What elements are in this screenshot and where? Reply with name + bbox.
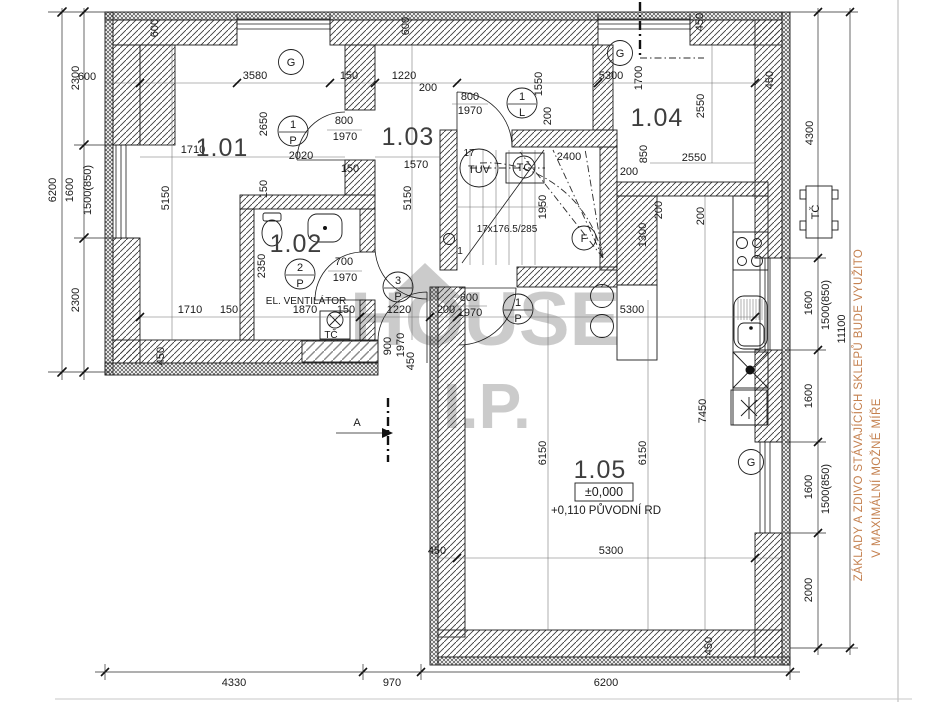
heat-pump-label: TČ (809, 205, 822, 220)
dim-label: 11100 (836, 315, 848, 344)
wall-segment (140, 45, 175, 145)
svg-text:P: P (289, 135, 296, 147)
section-label: A (353, 417, 361, 429)
dim-label: 450 (155, 347, 167, 365)
dim-label: 450 (405, 352, 417, 370)
door-size: 800 (335, 115, 353, 127)
wall-segment (360, 209, 375, 252)
svg-text:1: 1 (519, 91, 525, 103)
dim-label: 6150 (637, 441, 649, 465)
floor-plan-drawing: HOUSE I.P. (0, 0, 936, 702)
room-label-105: 1.05 (574, 456, 627, 484)
dim-label: 1700 (633, 66, 645, 90)
stoop-hatch (302, 341, 378, 362)
svg-text:3: 3 (395, 275, 401, 287)
dim-label: 150 (220, 304, 238, 316)
wall-segment (440, 130, 457, 270)
wall-segment (330, 20, 598, 45)
dim-label: 6150 (537, 441, 549, 465)
door-size: 1970 (458, 105, 482, 117)
svg-text:L: L (519, 107, 525, 119)
dim-label: 2350 (256, 254, 268, 278)
dishwasher-dot (746, 366, 755, 375)
dim-label: 2550 (695, 94, 707, 118)
room-label-101: 1.01 (196, 134, 249, 162)
dim-label: 150 (341, 163, 359, 175)
dim-label: 5300 (599, 70, 623, 82)
dim-label: 450 (703, 637, 715, 655)
dim-label: 200 (653, 201, 665, 219)
dim-label: 200 (620, 166, 638, 178)
dim-label: 1600 (803, 291, 815, 315)
dim-label: 150 (340, 70, 358, 82)
svg-text:P: P (514, 313, 521, 325)
room-label-103: 1.03 (382, 123, 435, 151)
dim-label: 450 (694, 13, 706, 31)
svg-text:TUV: TUV (468, 164, 491, 176)
wall-segment (360, 300, 375, 340)
dim-label: 4300 (804, 121, 816, 145)
dim-label: 1550 (533, 72, 545, 96)
dim-label: 6200 (47, 178, 59, 202)
insulation-strip (430, 287, 438, 665)
dim-label: 2400 (557, 151, 581, 163)
dim-label: 4330 (222, 677, 246, 689)
dim-label: 450 (764, 71, 776, 89)
stair-first-number: 1 (457, 246, 463, 257)
svg-text:2: 2 (297, 262, 303, 274)
dim-label: 1950 (537, 195, 549, 219)
door-size: 1970 (458, 307, 482, 319)
dim-label: 1570 (404, 159, 428, 171)
wall-segment (755, 350, 782, 442)
dim-label: 200 (419, 82, 437, 94)
dim-label: 970 (383, 677, 401, 689)
wall-segment (438, 630, 782, 657)
dim-label: 1600 (803, 384, 815, 408)
dim-label: 200 (542, 107, 554, 125)
wall-segment (593, 45, 613, 130)
dim-label: 1600 (803, 475, 815, 499)
basin-drain-icon (323, 226, 327, 230)
dim-label: 1710 (178, 304, 202, 316)
room-label-104: 1.04 (631, 104, 684, 132)
dim-label: 150 (258, 180, 270, 198)
svg-text:1: 1 (515, 297, 521, 309)
dim-label: 2550 (682, 152, 706, 164)
dim-label: 2300 (70, 288, 82, 312)
wall-segment (600, 147, 617, 270)
dim-label: 1500(850) (820, 464, 832, 514)
dim-label: 1500(850) (82, 165, 94, 215)
dim-label: 5150 (402, 186, 414, 210)
svg-text:P: P (394, 291, 401, 303)
wall-segment (113, 45, 140, 145)
dim-label: 6200 (594, 677, 618, 689)
svg-text:G: G (616, 48, 625, 60)
dim-label: 2020 (289, 150, 313, 162)
wall-segment (517, 267, 617, 287)
door-size: 800 (460, 292, 478, 304)
svg-text:G: G (287, 57, 296, 69)
dim-label: 450 (428, 545, 446, 557)
dim-label: 1300 (637, 223, 649, 247)
insulation-strip (438, 657, 790, 665)
svg-text:P: P (296, 278, 303, 290)
svg-text:F: F (581, 233, 588, 245)
dim-label: 2000 (803, 578, 815, 602)
dim-label: 2650 (258, 112, 270, 136)
dim-label: 5300 (620, 304, 644, 316)
dim-label: 850 (638, 145, 650, 163)
dim-label: 600 (400, 17, 412, 35)
svg-text:TČ: TČ (517, 161, 532, 174)
insulation-strip (782, 12, 790, 665)
dim-label: 200 (695, 207, 707, 225)
dim-label: 5150 (160, 186, 172, 210)
wall-segment (240, 209, 254, 340)
wall-segment (512, 130, 617, 147)
svg-text:1: 1 (290, 119, 296, 131)
wall-segment (113, 20, 237, 45)
note-line-2: V MAXIMÁLNÍ MOŽNÉ MÍŘE (870, 398, 883, 558)
door-size: 700 (335, 256, 353, 268)
insulation-strip (105, 12, 113, 375)
dim-label: 7450 (697, 399, 709, 423)
vent-label: EL. VENTILÁTOR (266, 294, 346, 307)
floor-plan-page: HOUSE I.P. (0, 0, 936, 702)
level-original: +0,110 PŮVODNÍ RD (551, 504, 661, 517)
door-size: 1970 (333, 131, 357, 143)
insulation-strip (105, 363, 378, 375)
dim-label: 1220 (392, 70, 416, 82)
note-line-1: ZÁKLADY A ZDIVO STÁVAJÍCÍCH SKLEPŮ BUDE … (852, 249, 865, 582)
level-zero: ±0,000 (585, 485, 623, 499)
dim-label: 900 (382, 337, 394, 355)
door-size: 1970 (333, 272, 357, 284)
dim-label: 1600 (64, 178, 76, 202)
dim-label: 600 (149, 19, 161, 37)
stair-formula: 17x176.5/285 (477, 224, 538, 235)
dim-label: 1500(850) (820, 280, 832, 330)
dim-label: 1220 (387, 304, 411, 316)
dim-label: 5300 (599, 545, 623, 557)
svg-text:G: G (747, 457, 756, 469)
fan-label: TČ (324, 328, 337, 341)
wall-segment (755, 20, 782, 258)
wall-segment (438, 287, 465, 637)
room-label-102: 1.02 (270, 230, 323, 258)
dim-label: 3580 (243, 70, 267, 82)
door-size: 800 (461, 91, 479, 103)
wall-segment (617, 182, 768, 196)
dim-label: 2300 (70, 66, 82, 90)
